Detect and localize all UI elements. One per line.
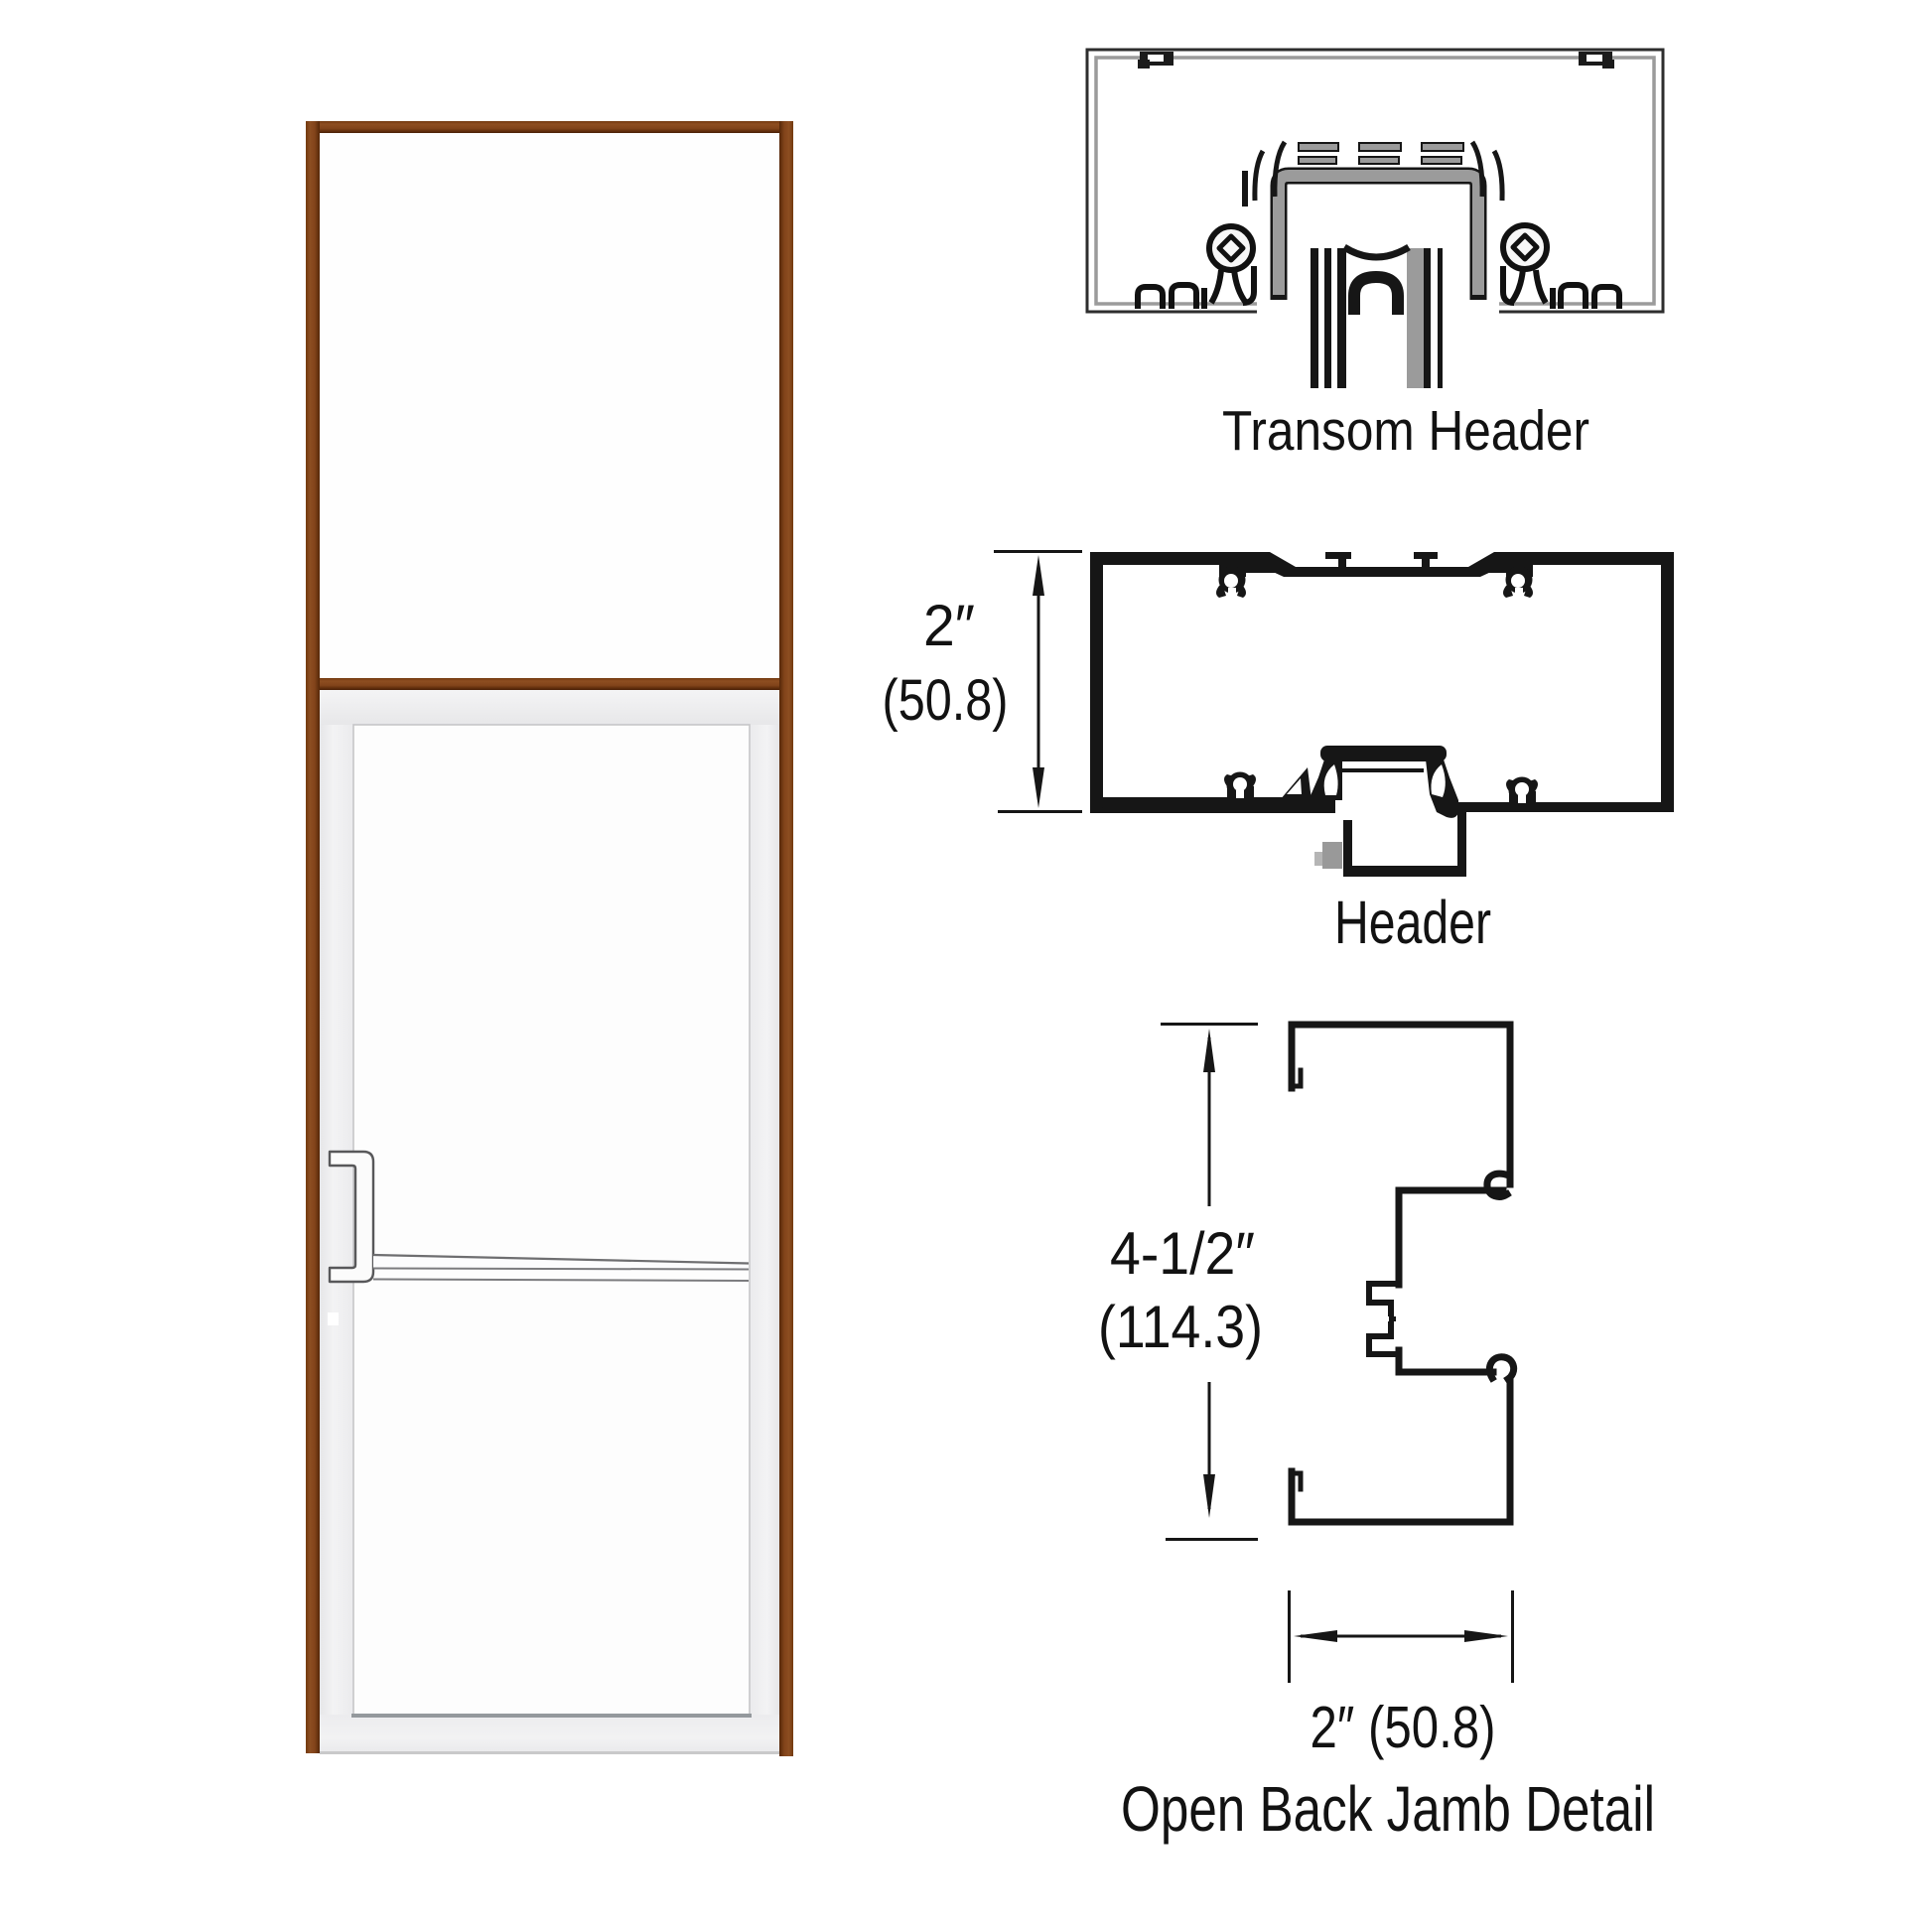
svg-text:Transom Header: Transom Header [1222, 399, 1589, 463]
svg-text:2″: 2″ [923, 594, 975, 658]
svg-text:(50.8): (50.8) [883, 668, 1009, 733]
svg-text:4-1/2″: 4-1/2″ [1110, 1220, 1255, 1287]
svg-text:(114.3): (114.3) [1098, 1294, 1263, 1360]
svg-text:2″ (50.8): 2″ (50.8) [1311, 1695, 1496, 1760]
svg-text:Open Back Jamb Detail: Open Back Jamb Detail [1121, 1773, 1655, 1845]
svg-text:Header: Header [1334, 889, 1491, 956]
